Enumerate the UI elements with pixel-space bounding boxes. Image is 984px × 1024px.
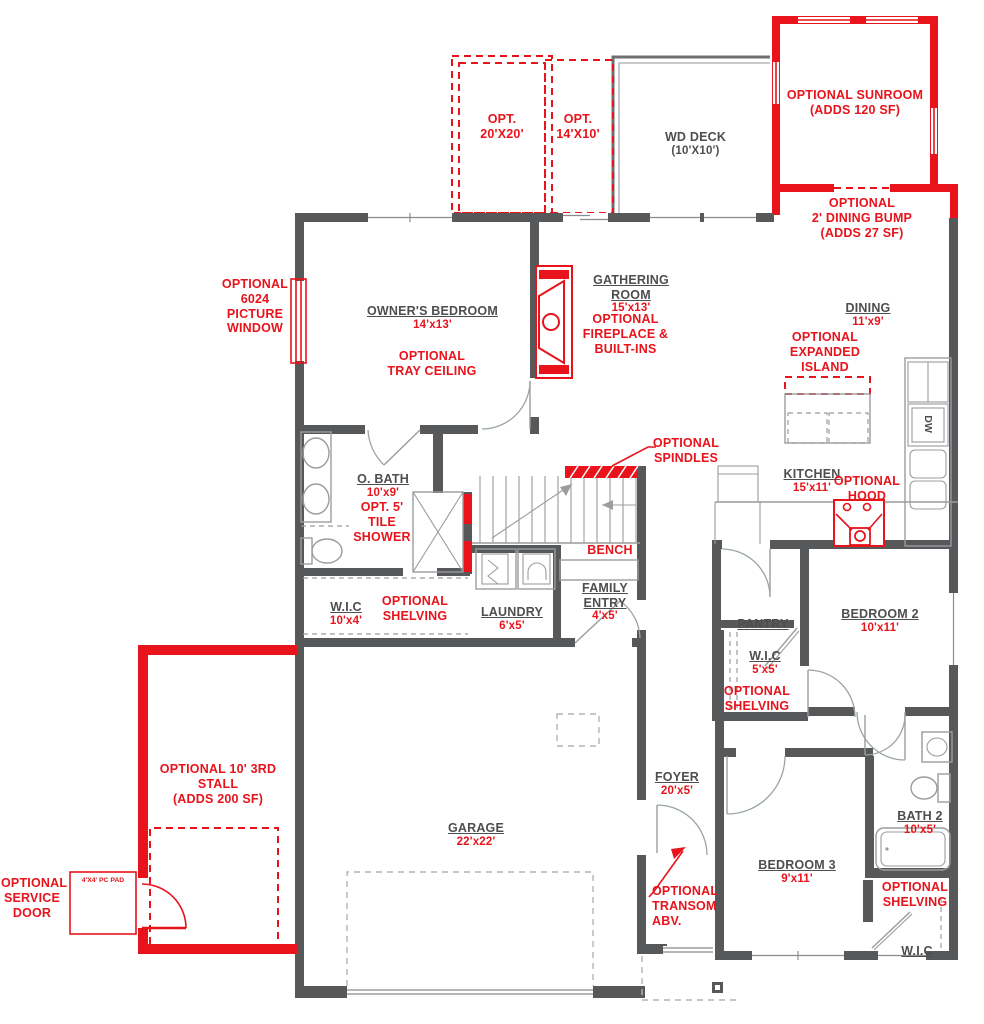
laundry-fixtures <box>476 549 555 589</box>
room-label-wic-owner: W.I.C 10'x4' <box>317 585 375 643</box>
room-label-bath-2: BATH 2 10'x5' <box>889 794 951 852</box>
room-name: WD DECK <box>665 130 726 144</box>
room-label-pantry: PANTRY <box>729 602 797 632</box>
room-label-wic-3: W.I.C <box>896 929 938 959</box>
room-label-bedroom-3: BEDROOM 3 9'x11' <box>757 843 837 901</box>
label-tile-shower: OPT. 5' TILE SHOWER <box>347 500 417 544</box>
room-name: FOYER <box>655 770 699 784</box>
room-name: GATHERING ROOM <box>593 273 669 302</box>
room-name: BATH 2 <box>897 809 942 823</box>
label-fireplace: OPTIONAL FIREPLACE & BUILT-INS <box>577 312 674 356</box>
room-label-garage: GARAGE 22'x22' <box>445 806 507 864</box>
label-shelving-wic-owner: OPTIONAL SHELVING <box>375 594 455 624</box>
label-hood: OPTIONAL HOOD <box>829 474 905 504</box>
room-dim: 14'x13' <box>355 319 510 333</box>
label-third-stall: OPTIONAL 10' 3RD STALL (ADDS 200 SF) <box>148 762 288 806</box>
label-service-door: OPTIONAL SERVICE DOOR <box>1 876 63 920</box>
label-shelving-wic-3: OPTIONAL SHELVING <box>877 880 953 910</box>
label-shelving-wic-2: OPTIONAL SHELVING <box>717 684 797 714</box>
label-optional-sunroom: OPTIONAL SUNROOM (ADDS 120 SF) <box>780 88 930 118</box>
room-name: LAUNDRY <box>481 605 543 619</box>
room-dim: 11'x9' <box>838 316 898 330</box>
room-dim: 4'x5' <box>574 610 636 624</box>
room-dim: 10'x4' <box>317 615 375 629</box>
room-name: OWNER'S BEDROOM <box>367 304 498 318</box>
label-expanded-island: OPTIONAL EXPANDED ISLAND <box>780 330 870 374</box>
room-dim: 10'x5' <box>889 824 951 838</box>
staircase <box>467 476 640 543</box>
room-dim: (10'X10') <box>633 145 758 159</box>
room-dim: 10'x11' <box>836 622 924 636</box>
label-transom: OPTIONAL TRANSOM ABV. <box>652 884 724 928</box>
floor-plan: OPT. 20'X20' OPT. 14'X10' WD DECK (10'X1… <box>0 0 984 1024</box>
room-label-wd-deck: WD DECK (10'X10') <box>633 115 758 173</box>
label-picture-window: OPTIONAL 6024 PICTURE WINDOW <box>218 277 292 336</box>
label-spindles: OPTIONAL SPINDLES <box>648 436 724 466</box>
label-bench: BENCH <box>578 543 642 558</box>
label-opt-14x10: OPT. 14'X10' <box>538 112 618 142</box>
label-dining-bump: OPTIONAL 2' DINING BUMP (ADDS 27 SF) <box>788 196 936 240</box>
room-name: DINING <box>846 301 891 315</box>
room-label-owners-bedroom: OWNER'S BEDROOM 14'x13' <box>355 289 510 347</box>
island-outline <box>785 377 870 443</box>
room-name: PANTRY <box>737 617 788 631</box>
room-dim: 10'x9' <box>345 487 421 501</box>
room-name: FAMILY ENTRY <box>582 581 628 610</box>
room-label-bedroom-2: BEDROOM 2 10'x11' <box>836 592 924 650</box>
porch-outline <box>642 956 737 1000</box>
room-label-laundry: LAUNDRY 6'x5' <box>472 590 552 648</box>
room-name: W.I.C <box>330 600 362 614</box>
room-dim: 6'x5' <box>472 620 552 634</box>
room-label-foyer: FOYER 20'x5' <box>649 755 705 813</box>
fireplace-icon <box>536 266 572 378</box>
room-dim: 9'x11' <box>757 873 837 887</box>
label-pc-pad: 4'X4' PC PAD <box>74 878 132 885</box>
room-dim: 20'x5' <box>649 785 705 799</box>
room-name: W.I.C <box>901 944 933 958</box>
room-name: O. BATH <box>357 472 409 486</box>
room-name: GARAGE <box>448 821 504 835</box>
picture-window-symbol <box>291 279 306 363</box>
label-dishwasher: DW <box>922 409 934 439</box>
label-tray-ceiling: OPTIONAL TRAY CEILING <box>367 349 497 379</box>
room-label-family-entry: FAMILY ENTRY 4'x5' <box>574 566 636 639</box>
room-dim: 22'x22' <box>445 836 507 850</box>
room-name: W.I.C <box>749 649 781 663</box>
room-name: BEDROOM 3 <box>758 858 836 872</box>
room-name: BEDROOM 2 <box>841 607 919 621</box>
room-dim: 5'x5' <box>740 664 790 678</box>
